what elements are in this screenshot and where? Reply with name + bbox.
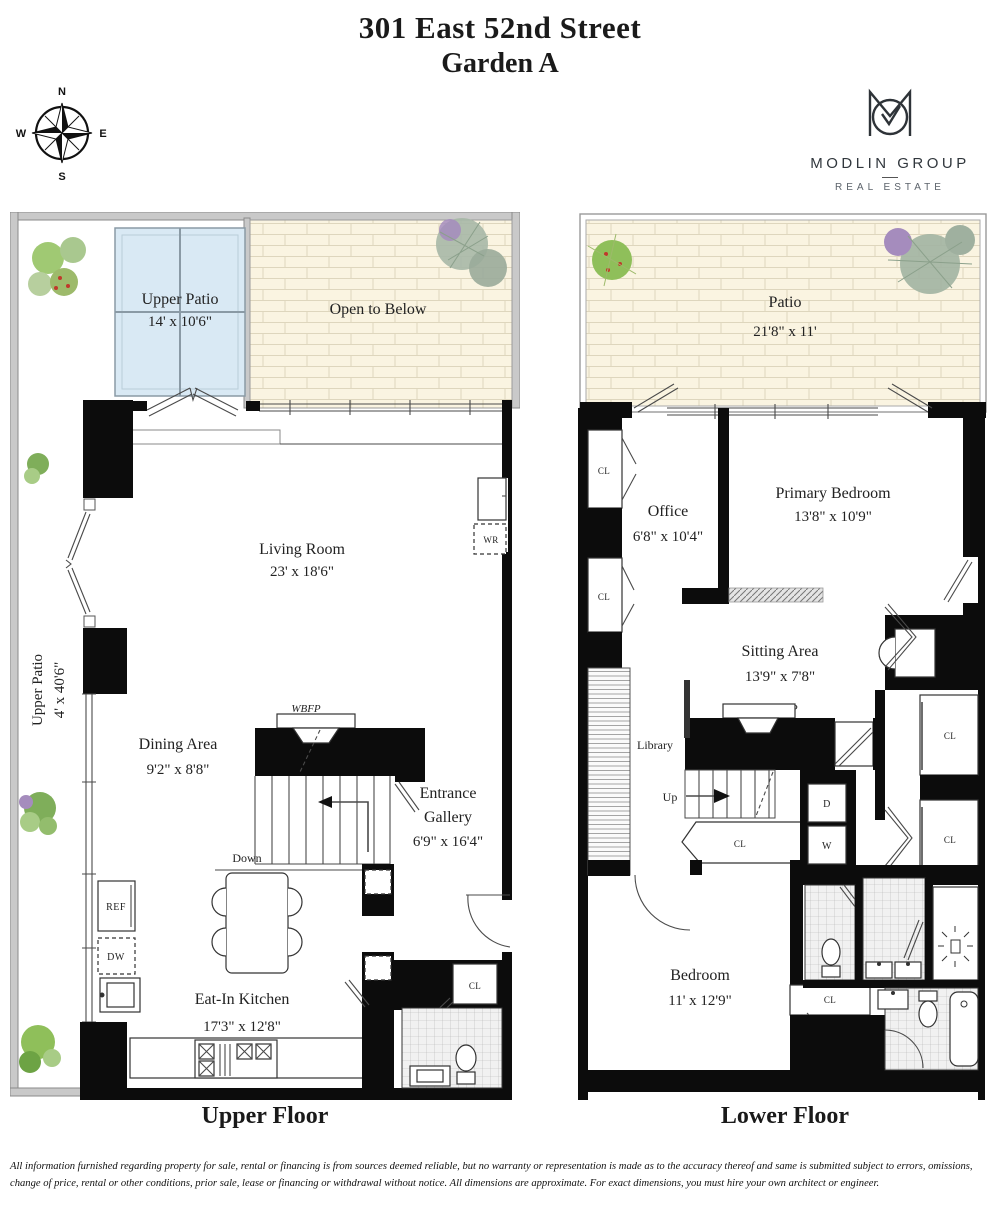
cl-label: CL <box>598 592 610 602</box>
wall-bottom <box>80 1088 512 1100</box>
wr-label: WR <box>483 535 498 545</box>
toilet-icon <box>822 939 840 977</box>
brand-tagline: REAL ESTATE <box>795 182 985 193</box>
office-dims: 6'8" x 10'4" <box>633 529 703 545</box>
living-room-dims: 23' x 18'6" <box>270 564 334 580</box>
library-label: Library <box>637 738 673 752</box>
entry-door <box>466 895 510 947</box>
primary-bedroom-dims: 13'8" x 10'9" <box>794 509 872 525</box>
dining-area-dims: 9'2" x 8'8" <box>147 762 210 778</box>
cl-label: CL <box>944 835 956 845</box>
wall <box>83 628 127 694</box>
entrance-gallery-label1: Entrance <box>420 785 477 802</box>
compass-north: N <box>58 86 66 98</box>
upper-patio-dims: 14' x 10'6" <box>148 314 212 330</box>
sitting-area-label: Sitting Area <box>742 643 819 660</box>
floor-plan-upper: Upper Patio 14' x 10'6" Open to Below Up… <box>10 212 520 1100</box>
side-patio-label: Upper Patio <box>30 654 46 726</box>
cl-label: CL <box>598 466 610 476</box>
wall <box>502 552 512 900</box>
disclaimer-line1: All information furnished regarding prop… <box>10 1158 995 1175</box>
dining-area-label: Dining Area <box>139 736 218 753</box>
upper-patio-label: Upper Patio <box>142 291 219 308</box>
floorplan-page: 301 East 52nd Street Garden A N E S W MO… <box>0 0 1000 1212</box>
curtain-rail <box>125 430 502 444</box>
bathroom <box>805 885 863 980</box>
floor-plan-lower: Patio 21'8" x 11' CL <box>578 212 990 1100</box>
toilet-icon <box>456 1045 476 1084</box>
cl-label: CL <box>944 731 956 741</box>
wall <box>502 952 512 1100</box>
wall <box>963 408 985 557</box>
hatched-step <box>729 588 823 602</box>
patio-dims: 21'8" x 11' <box>753 324 817 340</box>
wall-bottom <box>588 1070 985 1092</box>
compass-south: S <box>58 171 65 183</box>
open-to-below-label: Open to Below <box>330 301 427 318</box>
disclaimer-line2: change of price, rental or other conditi… <box>10 1175 995 1192</box>
bathroom <box>878 988 978 1070</box>
skylight <box>115 228 245 396</box>
bedroom-dims: 11' x 12'9" <box>668 993 731 1009</box>
brand-logo: MODLIN GROUP REAL ESTATE <box>795 84 985 193</box>
patio-wall-top <box>10 212 520 220</box>
door-leaf <box>395 782 419 812</box>
dw-label: DW <box>107 952 125 963</box>
wall <box>83 400 133 498</box>
bathroom <box>863 878 925 980</box>
office-label: Office <box>648 503 689 520</box>
living-room-label: Living Room <box>259 541 345 558</box>
plant <box>19 792 57 835</box>
compass-east: E <box>99 128 106 140</box>
kitchen-dims: 17'3" x 12'8" <box>203 1019 281 1035</box>
modlin-monogram-icon <box>858 84 922 142</box>
cl-label: CL <box>734 839 746 849</box>
bathroom <box>402 1008 502 1088</box>
compass-west: W <box>16 128 27 140</box>
table-and-chairs <box>212 873 302 973</box>
wall <box>502 400 512 478</box>
kitchen-label: Eat-In Kitchen <box>195 991 290 1008</box>
dryer-label: D <box>823 799 831 810</box>
primary-bedroom-label: Primary Bedroom <box>775 485 891 502</box>
brand-name: MODLIN GROUP <box>795 155 985 172</box>
stove <box>130 1038 376 1078</box>
wall <box>790 860 803 985</box>
stairs-up <box>685 770 775 818</box>
plant <box>19 1025 61 1073</box>
toilet-icon <box>919 991 937 1027</box>
bedroom-door <box>635 875 690 930</box>
patio-wall-bottom-cap <box>10 1088 86 1096</box>
patio-wall-left <box>10 212 18 1096</box>
sitting-area-dims: 13'9" x 7'8" <box>745 669 815 685</box>
wall <box>684 680 690 738</box>
page-title: 301 East 52nd Street <box>0 10 1000 46</box>
library-shelves <box>588 668 630 875</box>
patio-label: Patio <box>769 294 802 311</box>
down-label: Down <box>232 851 261 865</box>
up-label: Up <box>663 790 678 804</box>
entrance-gallery-label2: Gallery <box>424 809 472 826</box>
wall <box>718 408 729 588</box>
upper-floor-label: Upper Floor <box>115 1103 415 1130</box>
bathtub-icon <box>950 992 978 1066</box>
entrance-gallery-dims: 6'9" x 16'4" <box>413 834 483 850</box>
bedroom-label: Bedroom <box>670 967 730 984</box>
compass-rose: N E S W <box>15 80 110 185</box>
patio-wall-right <box>512 212 520 408</box>
terrace-doors <box>66 512 90 614</box>
wall-left <box>578 408 588 1100</box>
wbfp-label: WBFP <box>291 703 321 715</box>
washer-label: W <box>822 841 832 852</box>
window-wall <box>82 694 96 1022</box>
plant <box>28 237 86 296</box>
side-patio-dims: 4' x 40'6" <box>52 662 68 719</box>
plant <box>24 453 49 484</box>
brand-divider <box>882 177 898 178</box>
cl-label: CL <box>469 981 481 991</box>
page-subtitle: Garden A <box>0 48 1000 80</box>
lower-floor-label: Lower Floor <box>635 1103 935 1130</box>
kitchen-sink <box>100 978 141 1012</box>
door-leaf <box>944 560 972 602</box>
shower-room <box>933 887 978 980</box>
wall <box>588 860 630 875</box>
ref-label: REF <box>106 902 126 913</box>
cl-label: CL <box>824 995 836 1005</box>
